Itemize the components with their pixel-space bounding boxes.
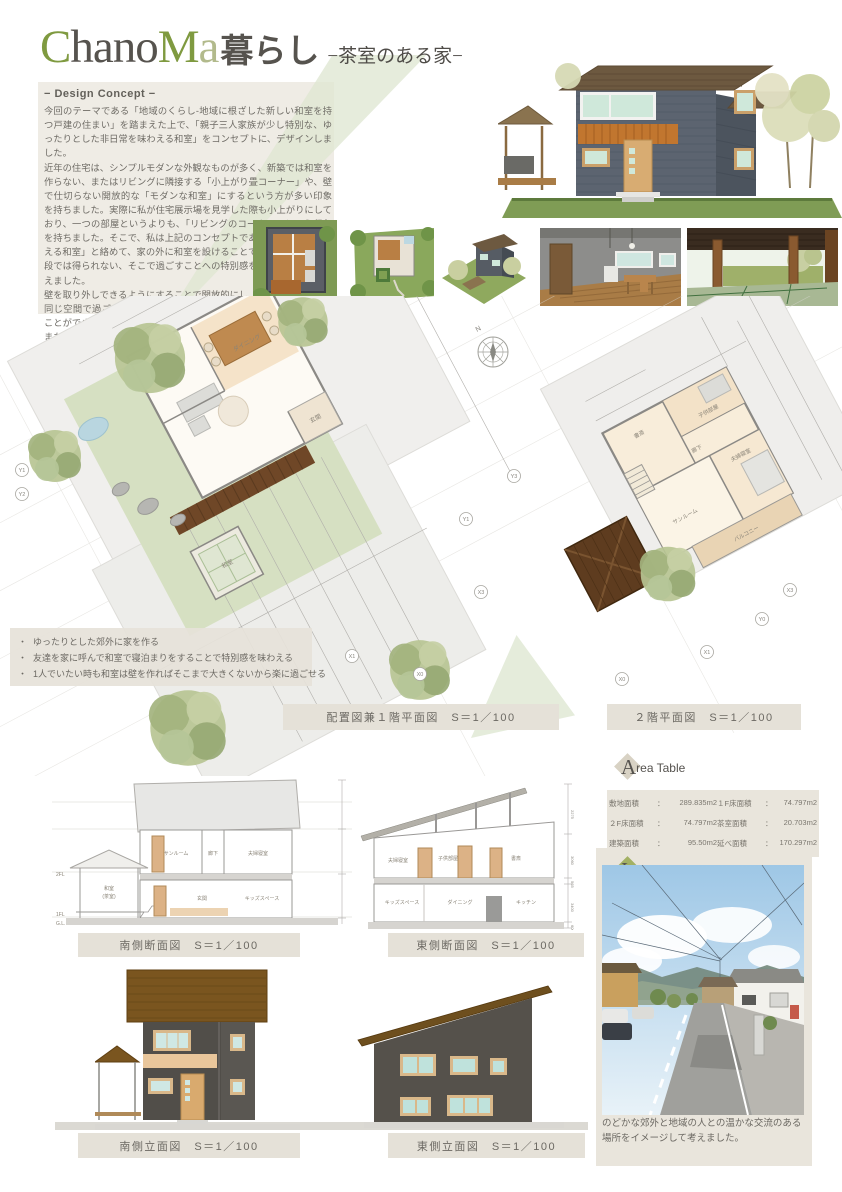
north-label: N bbox=[475, 325, 483, 334]
window bbox=[583, 95, 653, 117]
section-room-bedroom: 夫婦寝室 bbox=[248, 850, 268, 857]
svg-text:Y3: Y3 bbox=[511, 474, 518, 480]
thumbnail-site-aerial-render bbox=[346, 224, 440, 303]
south-section-drawing: サンルーム 廊下 夫婦寝室 玄関 キッズスペース 和室 (茶室) 2FL 1FL… bbox=[52, 772, 352, 930]
area-table-heading: A rea Table bbox=[618, 755, 842, 780]
bullet-item: ・ゆったりとした郊外に家を作る bbox=[18, 634, 304, 650]
south-section-label-bar: 南側断面図 S＝1／100 bbox=[78, 933, 300, 957]
balcony-band bbox=[143, 1054, 217, 1068]
bullet-item: ・友達を家に呼んで和室で寝泊まりをすることで特別感を味わえる bbox=[18, 650, 304, 666]
svg-text:Y1: Y1 bbox=[19, 468, 26, 474]
section-room-tearoom: 和室 bbox=[104, 885, 114, 892]
level-1fl: 1FL bbox=[56, 912, 65, 918]
east-elevation-drawing bbox=[352, 978, 577, 1130]
section-room-corridor: 廊下 bbox=[208, 850, 218, 857]
section-room-tearoom-sub: (茶室) bbox=[102, 893, 116, 900]
area-table: 敷地面積：289.835m2 １F床面積：74.797m2 ２F床面積：74.7… bbox=[607, 790, 819, 857]
level-2fl: 2FL bbox=[56, 872, 65, 878]
tea-pavilion-section: 和室 (茶室) bbox=[70, 850, 148, 918]
svg-text:X0: X0 bbox=[619, 677, 626, 683]
east-section-drawing: 夫婦寝室 子供部屋 書斎 キッズスペース ダイニング キッチン 2275 306… bbox=[358, 776, 578, 930]
dim-value: 2275 bbox=[570, 810, 575, 820]
section-room-study: 書斎 bbox=[511, 855, 521, 862]
svg-text:Y2: Y2 bbox=[19, 492, 26, 498]
compass-icon: N bbox=[475, 325, 508, 367]
street-photo bbox=[602, 865, 804, 1115]
thumbnail-isometric-render bbox=[434, 220, 534, 307]
section-room-kidsspace: キッズスペース bbox=[385, 899, 419, 906]
south-elevation-drawing bbox=[95, 962, 300, 1130]
thumbnail-2f-cutaway-render bbox=[253, 220, 337, 305]
section-room-kitchen: キッチン bbox=[516, 900, 536, 906]
design-concept-heading: − Design Concept − bbox=[44, 88, 332, 100]
tea-pavilion-elevation bbox=[95, 1046, 141, 1120]
dim-value: 3060 bbox=[570, 856, 575, 866]
photo-caption: のどかな郊外と地域の人との温かな交流のある場所をイメージして考えました。 bbox=[602, 1116, 804, 1146]
dim-value: 565 bbox=[570, 881, 575, 888]
dim-value: 3400 bbox=[570, 903, 575, 913]
east-section-label-bar: 東側断面図 S＝1／100 bbox=[388, 933, 584, 957]
title-kurashi: 暮らし bbox=[220, 34, 319, 67]
title-chanoma: ChanoMa bbox=[40, 24, 218, 71]
svg-text:X1: X1 bbox=[349, 654, 356, 660]
design-concept-paragraph: 今回のテーマである「地域のくらし-地域に根ざした新しい和室を持つ戸建の住まい」を… bbox=[44, 104, 332, 161]
thumbnail-interior-dining-render bbox=[540, 228, 681, 306]
section-room-sunroom: サンルーム bbox=[164, 851, 189, 857]
svg-text:Y1: Y1 bbox=[463, 517, 470, 523]
plan-2f-label-bar: ２階平面図 S＝1／100 bbox=[607, 704, 801, 730]
svg-text:X3: X3 bbox=[787, 588, 794, 594]
bullet-notes: ・ゆったりとした郊外に家を作る ・友達を家に呼んで和室で寝泊まりをすることで特別… bbox=[10, 628, 312, 686]
section-room-entrance: 玄関 bbox=[197, 895, 207, 902]
presentation-board: ChanoMa 暮らし −茶室のある家− − Design Concept − … bbox=[0, 0, 842, 1192]
svg-text:Y0: Y0 bbox=[759, 617, 766, 623]
title-subtitle: −茶室のある家− bbox=[327, 41, 462, 68]
section-room-bedroom: 夫婦寝室 bbox=[388, 857, 408, 864]
svg-text:X1: X1 bbox=[704, 650, 711, 656]
front-door bbox=[624, 140, 652, 192]
svg-text:X0: X0 bbox=[417, 672, 424, 678]
thumbnail-tearoom-interior-render bbox=[687, 228, 838, 306]
front-door bbox=[181, 1074, 204, 1120]
south-elevation-label-bar: 南側立面図 S＝1／100 bbox=[78, 1133, 300, 1158]
roof-section bbox=[134, 780, 300, 832]
section-room-dining: ダイニング bbox=[447, 899, 472, 906]
main-exterior-render bbox=[498, 28, 842, 228]
east-elevation-label-bar: 東側立面図 S＝1／100 bbox=[388, 1133, 585, 1158]
svg-text:X3: X3 bbox=[478, 590, 485, 596]
level-gl: G.L. bbox=[56, 921, 65, 927]
section-room-kids: キッズスペース bbox=[245, 895, 279, 902]
section-room-kidsroom: 子供部屋 bbox=[438, 855, 458, 862]
plan-1f-label-bar: 配置図兼１階平面図 S＝1／100 bbox=[283, 704, 559, 730]
page-title: ChanoMa 暮らし −茶室のある家− bbox=[40, 24, 463, 71]
dim-value: 600 bbox=[570, 925, 575, 930]
bullet-item: ・1人でいたい時も和室は壁を作ればそこまで大きくないから楽に過ごせる bbox=[18, 666, 304, 682]
